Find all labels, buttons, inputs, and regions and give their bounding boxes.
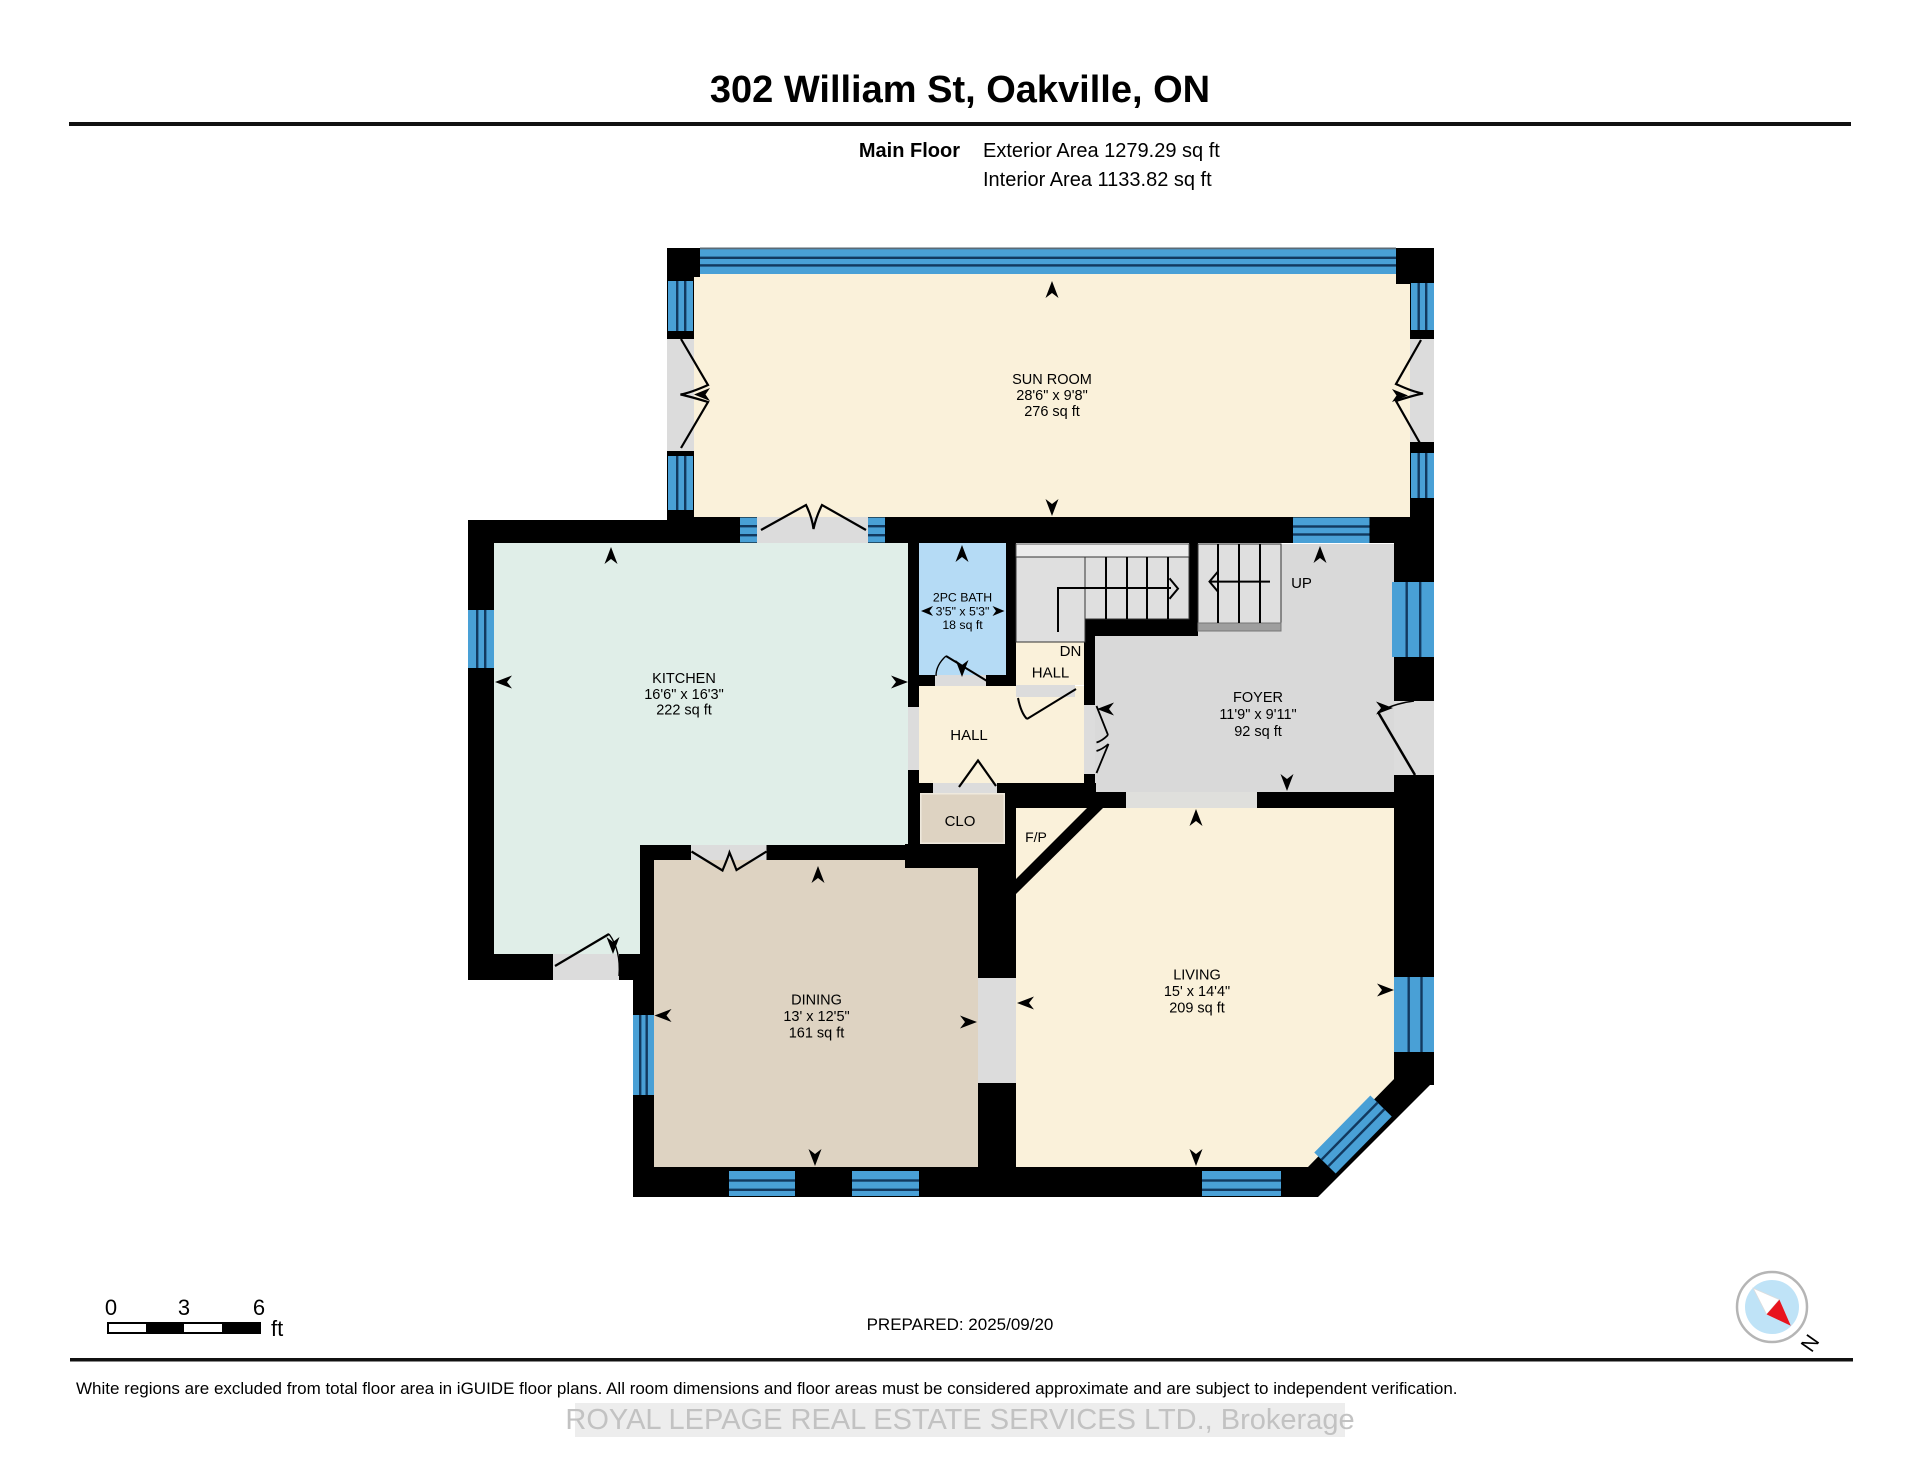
svg-text:28'6" x 9'8": 28'6" x 9'8" — [1016, 388, 1087, 404]
svg-text:13' x 12'5": 13' x 12'5" — [783, 1009, 849, 1025]
svg-text:HALL: HALL — [950, 727, 988, 744]
svg-text:11'9" x 9'11": 11'9" x 9'11" — [1219, 707, 1296, 723]
svg-text:UP: UP — [1291, 575, 1312, 592]
svg-text:161 sq ft: 161 sq ft — [789, 1026, 845, 1042]
svg-text:FOYER: FOYER — [1233, 690, 1283, 706]
svg-text:18 sq ft: 18 sq ft — [942, 618, 983, 632]
svg-text:Interior Area 1133.82 sq ft: Interior Area 1133.82 sq ft — [983, 169, 1212, 191]
svg-text:DINING: DINING — [791, 993, 842, 1009]
svg-text:0: 0 — [105, 1295, 117, 1320]
svg-text:302 William St, Oakville, ON: 302 William St, Oakville, ON — [710, 69, 1210, 111]
svg-text:DN: DN — [1060, 643, 1082, 660]
svg-text:ROYAL LEPAGE REAL ESTATE SERVI: ROYAL LEPAGE REAL ESTATE SERVICES LTD., … — [565, 1404, 1354, 1436]
svg-text:3'5" x 5'3": 3'5" x 5'3" — [936, 605, 990, 619]
svg-text:F/P: F/P — [1025, 829, 1047, 845]
svg-text:209 sq ft: 209 sq ft — [1169, 1001, 1225, 1017]
svg-text:Exterior Area 1279.29 sq ft: Exterior Area 1279.29 sq ft — [983, 140, 1220, 162]
svg-text:3: 3 — [178, 1295, 190, 1320]
svg-text:6: 6 — [253, 1295, 265, 1320]
svg-text:White regions are excluded fro: White regions are excluded from total fl… — [76, 1379, 1458, 1398]
svg-text:ft: ft — [271, 1316, 283, 1341]
svg-text:CLO: CLO — [945, 813, 976, 830]
svg-text:HALL: HALL — [1032, 665, 1070, 682]
svg-text:15' x 14'4": 15' x 14'4" — [1164, 984, 1230, 1000]
svg-text:2PC BATH: 2PC BATH — [933, 591, 992, 605]
svg-text:276 sq ft: 276 sq ft — [1024, 404, 1080, 420]
svg-text:Main Floor: Main Floor — [859, 140, 960, 162]
svg-text:PREPARED: 2025/09/20: PREPARED: 2025/09/20 — [867, 1315, 1054, 1334]
svg-text:16'6" x 16'3": 16'6" x 16'3" — [644, 687, 724, 703]
svg-text:KITCHEN: KITCHEN — [652, 671, 716, 687]
svg-text:92 sq ft: 92 sq ft — [1234, 724, 1282, 740]
svg-text:222 sq ft: 222 sq ft — [656, 703, 712, 719]
svg-text:SUN ROOM: SUN ROOM — [1012, 372, 1092, 388]
svg-text:LIVING: LIVING — [1173, 968, 1221, 984]
